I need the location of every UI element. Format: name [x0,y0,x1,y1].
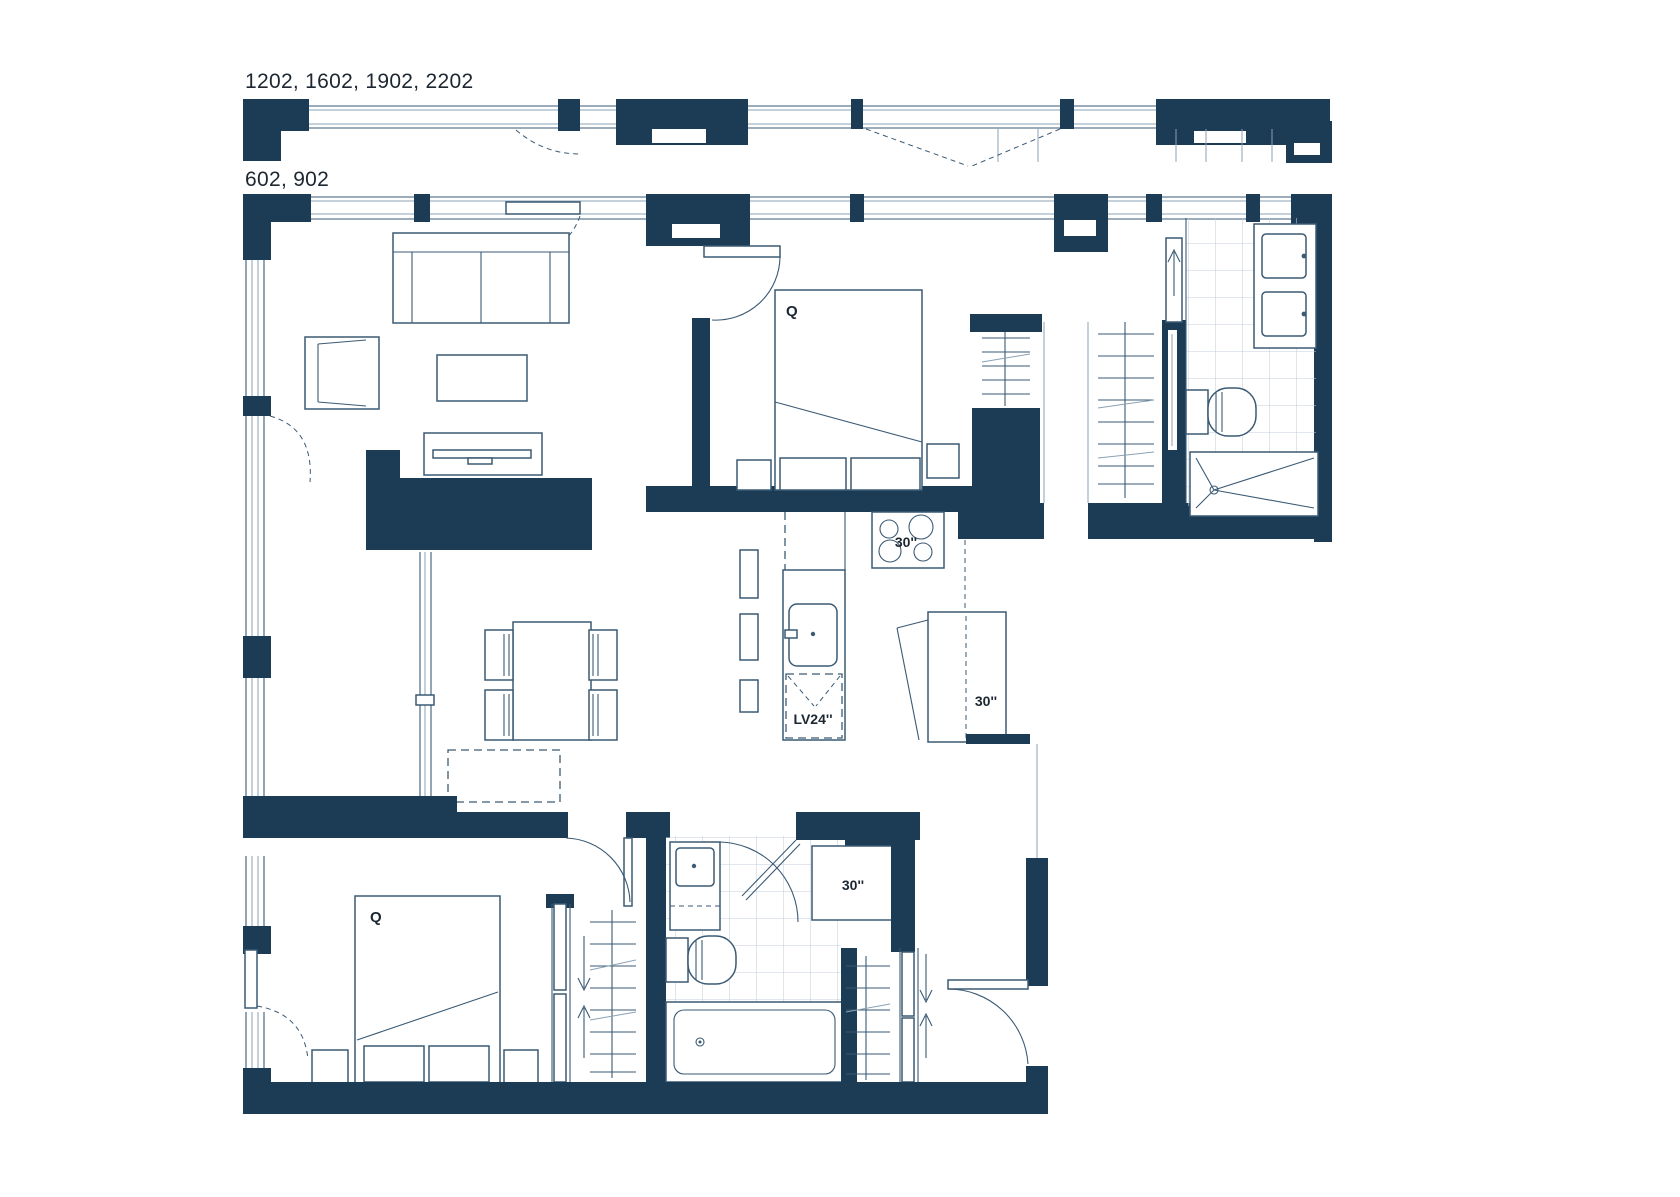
nightstand [737,460,771,490]
bulkhead-dashed [448,750,560,802]
dining-table [513,622,591,740]
bathtub [666,1002,843,1082]
bed1-size-label: Q [786,303,798,320]
floors-label-upper: 1202, 1602, 1902, 2202 [245,70,473,93]
entry-door [948,980,1028,989]
dining-area [416,552,617,802]
laundry-closet: 30'' [812,846,894,920]
range-width-label: 30'' [895,534,917,550]
fridge: 30'' [897,612,1006,742]
balcony-door-swing-living [270,416,310,482]
cooktop: 30'' [872,512,944,568]
floors-label-lower: 602, 902 [245,168,329,191]
entry-closet [846,948,932,1082]
nightstand [312,1050,348,1086]
floor-plan-svg: 1202, 1602, 1902, 2202 602, 902 [0,0,1680,1197]
floor-plan-page: 1202, 1602, 1902, 2202 602, 902 [0,0,1680,1197]
toilet-2 [666,936,736,984]
toilet-1 [1186,388,1256,436]
south-wall [243,1082,1048,1114]
upper-floors-strip [243,99,1332,166]
dishwasher-label: LV24'' [793,711,832,727]
kitchen-sink [785,604,837,666]
closet-rod-b [1098,322,1154,498]
shower [1190,452,1318,516]
tv-console [424,433,542,475]
entry [948,744,1048,1114]
armchair [305,337,379,409]
bath2-vanity [670,842,720,930]
unit-plan: Q [243,194,1332,1114]
bathroom-primary [1186,218,1318,516]
dishwasher: LV24'' [786,674,842,738]
bedroom2-door [624,838,632,906]
bedroom2-closet [546,894,636,1082]
coffee-table [437,355,527,401]
closet-rod-a [982,332,1030,406]
kitchen: 30'' LV24'' 30'' [740,512,1030,744]
laundry-width-label: 30'' [842,877,864,893]
bedroom-secondary: Q [243,796,670,1086]
bedroom1-door [704,246,780,257]
bedroom-primary: Q [646,246,978,512]
living-room [305,233,592,550]
bed2-size-label: Q [370,909,382,926]
bathroom-secondary: 30'' [646,812,932,1086]
nightstand [927,444,959,478]
balcony-door-bedroom2 [245,950,257,1008]
balcony-door-living [506,202,580,214]
west-window-wall [243,260,310,1112]
nightstand [504,1050,538,1086]
double-vanity [1254,224,1316,348]
fridge-width-label: 30'' [975,693,997,709]
